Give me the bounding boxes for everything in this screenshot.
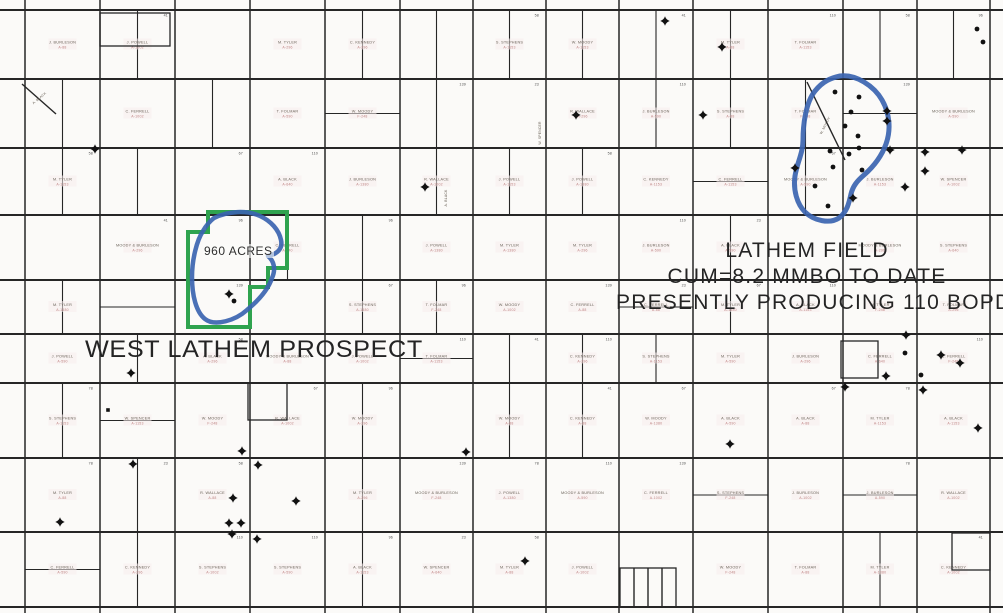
parcel-label: R. WALLACE [200,491,225,495]
parcel-label: C. FERRELL [868,355,892,359]
parcel-label: A-590 [725,360,735,364]
section-number: 78 [906,462,910,466]
parcel-label: M. TYLER [53,491,72,495]
cumulative-production-line: CUM=8.2 MMBO TO DATE [616,264,998,290]
parcel-label: A-88 [208,496,216,500]
parcel-label: S. STEPHENS [49,417,77,421]
parcel-label: A-1380 [503,249,516,253]
section-number: 67 [682,387,686,391]
acreage-label: 960 ACRES [203,244,274,258]
parcel-label: A-1153 [56,422,68,426]
parcel-label: MOODY & BURLESON [116,244,159,248]
parcel-label: A-1002 [131,115,144,119]
oil-well-dot [981,40,986,45]
oil-well-dot [828,149,833,154]
parcel-label: A-296 [357,496,367,500]
parcel-label: A-590 [651,115,661,119]
parcel-label: J. POWELL [499,491,521,495]
section-number: 96 [979,14,983,18]
section-number: 78 [89,387,93,391]
oil-well-dot [813,184,818,189]
parcel-label: C. KENNEDY [643,178,668,182]
parcel-label: J. POWELL [426,244,448,248]
parcel-label: A-296 [132,571,142,575]
section-number: 23 [462,536,466,540]
parcel-label: W. MOODY [352,417,374,421]
parcel-label: A-1002 [430,183,443,187]
parcel-label: A-590 [282,571,292,575]
parcel-label: W. MOODY [499,417,521,421]
parcel-label: A. BLACK [944,417,963,421]
parcel-label: F-248 [357,115,367,119]
plat-map: J. BURLESONA-88J. POWELLA-100241M. TYLER… [0,0,1003,613]
parcel-label: C. KENNEDY [125,566,150,570]
parcel-label: M. TYLER [500,566,519,570]
oil-well-dot [903,351,908,356]
parcel-label: A-1153 [799,46,811,50]
parcel-label: A-88 [801,422,809,426]
parcel-label: S. STEPHENS [717,110,745,114]
west-lathem-prospect-label: WEST LATHEM PROSPECT [85,336,423,364]
parcel-label: J. BURLESON [349,178,376,182]
section-number: 41 [535,338,539,342]
parcel-label: A-296 [577,249,587,253]
parcel-label: J. BURLESON [866,491,893,495]
parcel-label: A-296 [357,46,367,50]
parcel-label: S. STEPHENS [199,566,227,570]
oil-well-dot [232,299,237,304]
parcel-label: A-590 [282,115,292,119]
parcel-label: A-88 [726,115,734,119]
parcel-label: F-248 [431,496,441,500]
parcel-label: A-590 [57,571,67,575]
parcel-label: T. FOLMAR [795,566,817,570]
parcel-label: A. BLACK [353,566,372,570]
parcel-label: A-590 [57,360,67,364]
parcel-label: A-1002 [650,496,663,500]
parcel-label: C. FERRELL [126,110,150,114]
parcel-label: A-1380 [576,183,589,187]
parcel-label: J. POWELL [499,178,521,182]
parcel-label: A-1153 [874,183,886,187]
parcel-label: M. TYLER [353,491,372,495]
section-number: 110 [460,338,466,342]
parcel-label: A-590 [577,496,587,500]
parcel-label: A-1380 [356,308,369,312]
oil-well-dot [857,146,862,151]
parcel-label: A-590 [800,183,810,187]
section-number: 58 [608,152,612,156]
parcel-label: F-248 [725,571,735,575]
parcel-label: M. TYLER [721,355,740,359]
oil-well-dot [860,168,865,173]
parcel-label: A-1002 [947,571,960,575]
parcel-label: C. KENNEDY [570,417,595,421]
section-number: 23 [757,219,761,223]
parcel-label: S. STEPHENS [717,491,745,495]
section-number: 110 [606,338,612,342]
parcel-label: C. FERRELL [51,566,75,570]
parcel-label: M. TYLER [721,41,740,45]
oil-well-dot [826,204,831,209]
parcel-label: C. FERRELL [644,491,668,495]
parcel-label: MOODY & BURLESON [561,491,604,495]
section-number: 110 [237,536,243,540]
oil-well-dot [919,373,924,378]
oil-well-dot [856,134,861,139]
parcel-label: T. FOLMAR [795,41,817,45]
parcel-label: J. BURLESON [792,491,819,495]
section-number: 110 [312,152,318,156]
parcel-label: C. KENNEDY [941,566,966,570]
parcel-label: W. MOODY [720,566,742,570]
section-number: 58 [535,536,539,540]
parcel-label: W. MOODY [202,417,224,421]
section-number: 67 [239,152,243,156]
section-number: 58 [239,462,243,466]
parcel-label: J. POWELL [572,566,594,570]
parcel-label: A-1153 [503,46,515,50]
parcel-label: A-1153 [874,422,886,426]
square-well-marker [106,408,110,412]
parcel-label: R. WALLACE [424,178,449,182]
rotated-parcel-label: A. BLACK [444,189,448,206]
oil-well-dot [847,152,852,157]
parcel-label: T. FOLMAR [426,355,448,359]
parcel-label: M. TYLER [53,303,72,307]
parcel-label: A-1002 [206,571,219,575]
parcel-label: S. STEPHENS [496,41,524,45]
parcel-label: A-1153 [650,360,662,364]
parcel-label: A-1380 [356,183,369,187]
parcel-label: A-296 [357,422,367,426]
parcel-label: W. MOODY [645,417,667,421]
parcel-label: S. STEPHENS [349,303,377,307]
parcel-label: T. FOLMAR [277,110,299,114]
current-production-line: PRESENTLY PRODUCING 110 BOPD [616,290,998,316]
parcel-label: A-88 [58,46,66,50]
parcel-label: MOODY & BURLESON [932,110,975,114]
parcel-label: A-296 [282,46,292,50]
section-number: 110 [680,219,686,223]
parcel-label: J. BURLESON [642,110,669,114]
parcel-label: MOODY & BURLESON [415,491,458,495]
section-number: 23 [164,462,168,466]
parcel-label: A-1002 [576,571,589,575]
parcel-label: J. BURLESON [866,178,893,182]
parcel-label: J. BURLESON [49,41,76,45]
parcel-label: A-1153 [503,183,515,187]
parcel-label: A-590 [948,115,958,119]
parcel-label: A-88 [801,571,809,575]
parcel-label: M. TYLER [278,41,297,45]
parcel-label: A-1153 [576,46,588,50]
parcel-label: A-1153 [724,183,736,187]
parcel-label: M. TYLER [573,244,592,248]
section-number: 139 [459,462,466,466]
parcel-label: J. POWELL [52,355,74,359]
parcel-label: A-88 [726,46,734,50]
section-number: 96 [389,536,393,540]
parcel-label: A-88 [58,496,66,500]
section-number: 67 [832,387,836,391]
parcel-label: M. TYLER [53,178,72,182]
section-number: 58 [89,152,93,156]
section-number: 41 [164,219,168,223]
parcel-label: A. BLACK [278,178,297,182]
parcel-label: F-248 [725,496,735,500]
oil-well-dot [975,27,980,32]
parcel-label: C. FERRELL [571,303,595,307]
parcel-label: A-640 [431,571,441,575]
section-number: 139 [903,83,910,87]
parcel-label: S. STEPHENS [642,355,670,359]
section-number: 58 [535,14,539,18]
parcel-label: F-248 [431,308,441,312]
parcel-label: A-1153 [947,422,959,426]
parcel-label: F-248 [207,422,217,426]
lathem-field-annotation: LATHEM FIELD CUM=8.2 MMBO TO DATE PRESEN… [616,238,998,316]
parcel-label: A-296 [800,360,810,364]
parcel-label: A-296 [577,360,587,364]
section-number: 110 [977,338,983,342]
oil-well-dot [849,110,854,115]
parcel-label: W. SPENCER [941,178,967,182]
parcel-label: A. BLACK [721,417,740,421]
section-number: 110 [606,462,612,466]
parcel-label: A-1002 [799,496,812,500]
parcel-label: A-1380 [650,422,663,426]
section-number: 96 [239,219,243,223]
parcel-label: A-640 [282,183,292,187]
parcel-label: A. BLACK [796,417,815,421]
oil-well-dot [833,90,838,95]
parcel-label: W. MOODY [352,110,374,114]
parcel-label: S. STEPHENS [274,566,302,570]
section-number: 41 [682,14,686,18]
parcel-label: A-1002 [947,496,960,500]
parcel-label: R. WALLACE [941,491,966,495]
section-number: 110 [680,83,686,87]
section-number: 96 [389,387,393,391]
oil-well-dot [857,95,862,100]
section-number: 139 [459,83,466,87]
parcel-label: C. FERRELL [719,178,743,182]
parcel-label: C. KENNEDY [350,41,375,45]
parcel-label: A-88 [505,422,513,426]
oil-well-dot [843,124,848,129]
parcel-label: M. TYLER [500,244,519,248]
parcel-label: A-1153 [650,183,662,187]
parcel-label: A-1002 [503,308,516,312]
parcel-label: A-1153 [131,422,143,426]
parcel-label: A-88 [578,422,586,426]
parcel-label: W. SPENCER [424,566,450,570]
parcel-label: C. KENNEDY [570,355,595,359]
parcel-label: R. WALLACE [570,110,595,114]
parcel-label: A-1380 [874,571,887,575]
parcel-label: J. POWELL [572,178,594,182]
section-number: 41 [164,14,168,18]
parcel-label: A-1380 [56,308,69,312]
section-number: 58 [906,14,910,18]
section-number: 41 [608,387,612,391]
parcel-label: A-1380 [430,249,443,253]
parcel-label: W. MOODY [499,303,521,307]
parcel-label: T. FOLMAR [426,303,448,307]
section-number: 41 [979,536,983,540]
rotated-parcel-label: W. SPENCER [538,121,542,145]
parcel-label: J. POWELL [127,41,149,45]
parcel-label: A-88 [578,308,586,312]
section-number: 139 [236,284,243,288]
parcel-label: J. BURLESON [792,355,819,359]
parcel-label: W. MOODY [572,41,594,45]
section-number: 67 [832,152,836,156]
section-number: 110 [830,14,836,18]
section-number: 67 [389,284,393,288]
parcel-label: A-1380 [503,496,516,500]
oil-well-dot [831,165,836,170]
parcel-label: A-88 [505,571,513,575]
parcel-label: M. TYLER [870,566,889,570]
section-number: 96 [389,219,393,223]
parcel-label: A-296 [132,249,142,253]
section-number: 78 [906,387,910,391]
parcel-label: A-1153 [56,183,68,187]
parcel-label: A-1153 [356,571,368,575]
field-name-line: LATHEM FIELD [616,238,998,264]
parcel-label: A-1002 [281,422,294,426]
parcel-label: M. TYLER [870,417,889,421]
section-number: 96 [462,284,466,288]
section-number: 78 [535,462,539,466]
parcel-label: A-590 [725,422,735,426]
section-number: 139 [679,462,686,466]
section-number: 78 [89,462,93,466]
section-number: 67 [314,387,318,391]
section-number: 139 [605,284,612,288]
parcel-label: A-1002 [947,183,960,187]
section-number: 110 [312,536,318,540]
parcel-label: A-1153 [430,360,442,364]
parcel-label: A-640 [875,360,885,364]
parcel-label: W. SPENCER [125,417,151,421]
section-number: 23 [535,83,539,87]
parcel-label: MOODY & BURLESON [784,178,827,182]
parcel-label: A-590 [875,496,885,500]
